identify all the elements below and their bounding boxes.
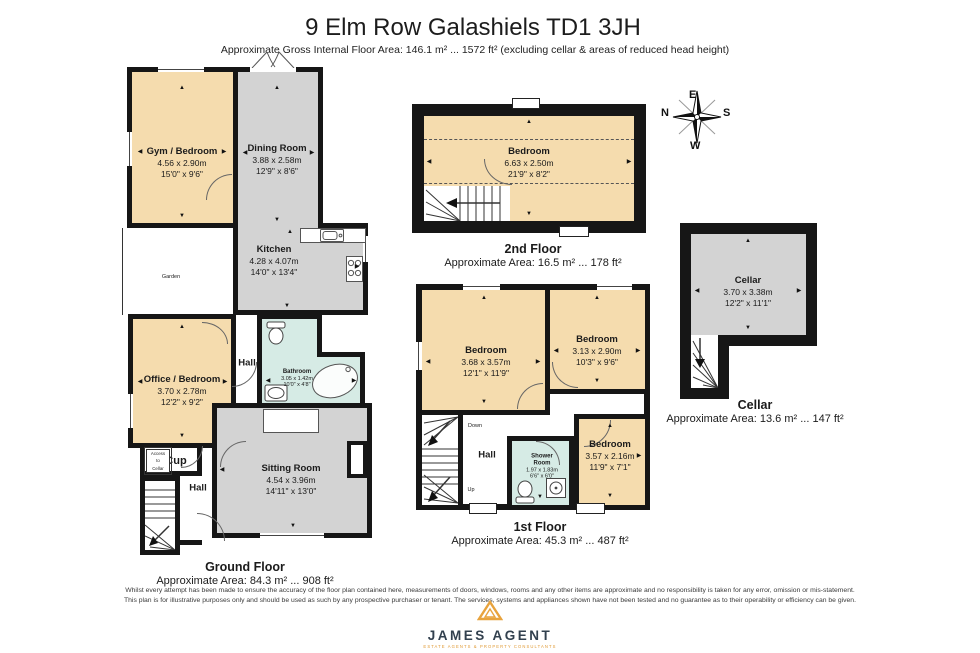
cellar-wall xyxy=(718,335,817,346)
window xyxy=(576,503,605,514)
compass-rose: E S W N xyxy=(659,86,737,150)
cellar-wall xyxy=(806,223,817,346)
chimney-recess-inner xyxy=(351,445,363,474)
dimension-marker xyxy=(310,150,315,156)
dimension-marker xyxy=(427,159,432,165)
dimension-marker xyxy=(745,325,751,331)
dimension-marker xyxy=(220,467,225,473)
logo-tagline: ESTATE AGENTS & PROPERTY CONSULTANTS xyxy=(0,644,980,649)
dimension-marker xyxy=(223,379,228,385)
dimension-marker xyxy=(284,303,290,309)
svg-text:N: N xyxy=(661,107,669,119)
dimension-marker xyxy=(554,348,559,354)
dimension-marker xyxy=(627,159,632,165)
window xyxy=(127,132,132,166)
window xyxy=(416,342,422,370)
reduced-headroom-line xyxy=(424,183,634,184)
second-floor-caption: 2nd FloorApproximate Area: 16.5 m² ... 1… xyxy=(444,242,621,269)
bedroom1-label: Bedroom3.68 x 3.57m12'1" x 11'9" xyxy=(461,345,510,379)
dimension-marker xyxy=(797,288,802,294)
window xyxy=(260,533,324,538)
floorplan-page: 9 Elm Row Galashiels TD1 3JH Approximate… xyxy=(0,0,980,653)
window xyxy=(128,394,133,428)
logo-name: JAMES AGENT xyxy=(0,628,980,643)
disclaimer-line1: Whilst every attempt has been made to en… xyxy=(0,586,980,596)
dimension-marker xyxy=(352,378,357,384)
page-title: 9 Elm Row Galashiels TD1 3JH xyxy=(0,14,980,42)
dimension-marker xyxy=(179,85,185,91)
stairs-down-label: Down xyxy=(468,423,482,429)
dimension-marker xyxy=(274,85,280,91)
shower-tray-icon xyxy=(546,478,566,498)
ground-stairs-icon xyxy=(145,481,175,550)
dimension-marker xyxy=(138,149,143,155)
kitchen-label: Kitchen4.28 x 4.07m14'0" x 13'4" xyxy=(249,244,298,278)
dimension-marker xyxy=(290,523,296,529)
dimension-marker xyxy=(481,295,487,301)
dimension-marker xyxy=(179,213,185,219)
dimension-marker xyxy=(355,264,360,270)
window xyxy=(158,67,204,72)
cellar-wall xyxy=(680,223,691,399)
office-label: Office / Bedroom3.70 x 2.78m12'2" x 9'2" xyxy=(144,374,221,408)
toilet-icon xyxy=(515,480,535,504)
dimension-marker xyxy=(222,149,227,155)
dimension-marker xyxy=(745,238,751,244)
cellar-stairs-icon xyxy=(691,335,718,388)
cellar-label: Cellar3.70 x 3.38m12'2" x 11'1" xyxy=(723,275,772,309)
window xyxy=(559,226,589,237)
agent-logo: JAMES AGENT ESTATE AGENTS & PROPERTY CON… xyxy=(0,600,980,649)
window xyxy=(463,284,500,290)
access-to-cellar-label: AccesstoCellar xyxy=(146,449,170,473)
dimension-marker xyxy=(243,150,248,156)
dimension-marker xyxy=(179,433,185,439)
garden-label: Garden xyxy=(162,274,180,280)
dimension-marker xyxy=(637,453,642,459)
hall-lower-label: Hall xyxy=(189,483,206,494)
first-floor-caption: 1st FloorApproximate Area: 45.3 m² ... 4… xyxy=(451,520,628,547)
sink-icon xyxy=(320,229,344,242)
dimension-marker xyxy=(179,324,185,330)
garden-area xyxy=(122,228,229,315)
cellar-wall xyxy=(680,223,817,234)
svg-text:S: S xyxy=(723,107,730,119)
dimension-marker xyxy=(426,359,431,365)
sitting-room-table xyxy=(263,409,319,433)
svg-text:E: E xyxy=(689,89,696,101)
dimension-marker xyxy=(537,494,543,500)
dimension-marker xyxy=(481,399,487,405)
shower-room-label: ShowerRoom 1.97 x 1.83m6'6" x 6'0" xyxy=(526,454,558,481)
bedroom3-label: Bedroom3.57 x 2.16m11'9" x 7'1" xyxy=(585,439,634,473)
window xyxy=(512,98,540,109)
dimension-marker xyxy=(594,295,600,301)
first-hall-label: Hall xyxy=(478,450,495,461)
dimension-marker xyxy=(607,423,613,429)
bedroom2-label: Bedroom3.13 x 2.90m10'3" x 9'6" xyxy=(572,334,621,368)
dimension-marker xyxy=(526,211,532,217)
cellar-caption: CellarApproximate Area: 13.6 m² ... 147 … xyxy=(666,398,843,425)
second-bedroom-label: Bedroom6.63 x 2.50m21'9" x 8'2" xyxy=(504,146,553,180)
window xyxy=(597,284,632,290)
dimension-marker xyxy=(607,493,613,499)
sitting-label: Sitting Room4.54 x 3.96m14'11" x 13'0" xyxy=(261,463,320,497)
logo-triangle-icon xyxy=(477,600,503,621)
first-stairs-icon xyxy=(422,415,458,505)
page-subtitle: Approximate Gross Internal Floor Area: 1… xyxy=(0,44,980,56)
bathroom-label: Bathroom3.05 x 1.42m10'0" x 4'8" xyxy=(281,369,313,389)
second-stairs-icon xyxy=(424,186,510,221)
hall-upper-label: Hall xyxy=(238,358,255,369)
svg-text:W: W xyxy=(690,140,701,150)
dimension-marker xyxy=(274,217,280,223)
dimension-marker xyxy=(594,378,600,384)
dimension-marker xyxy=(636,348,641,354)
dimension-marker xyxy=(266,378,271,384)
dining-label: Dining Room3.88 x 2.58m12'9" x 8'6" xyxy=(247,143,306,177)
toilet-icon xyxy=(266,321,286,345)
french-doors-icon xyxy=(250,50,296,68)
dimension-marker xyxy=(287,229,293,235)
dimension-marker xyxy=(695,288,700,294)
window xyxy=(469,503,497,514)
reduced-headroom-line xyxy=(424,139,634,140)
stairs-up-label: Up xyxy=(467,487,474,493)
dimension-marker xyxy=(536,359,541,365)
ground-floor-caption: Ground FloorApproximate Area: 84.3 m² ..… xyxy=(156,560,333,587)
dimension-marker xyxy=(526,119,532,125)
dimension-marker xyxy=(138,379,143,385)
gym-label: Gym / Bedroom4.56 x 2.90m15'0" x 9'6" xyxy=(147,146,218,180)
